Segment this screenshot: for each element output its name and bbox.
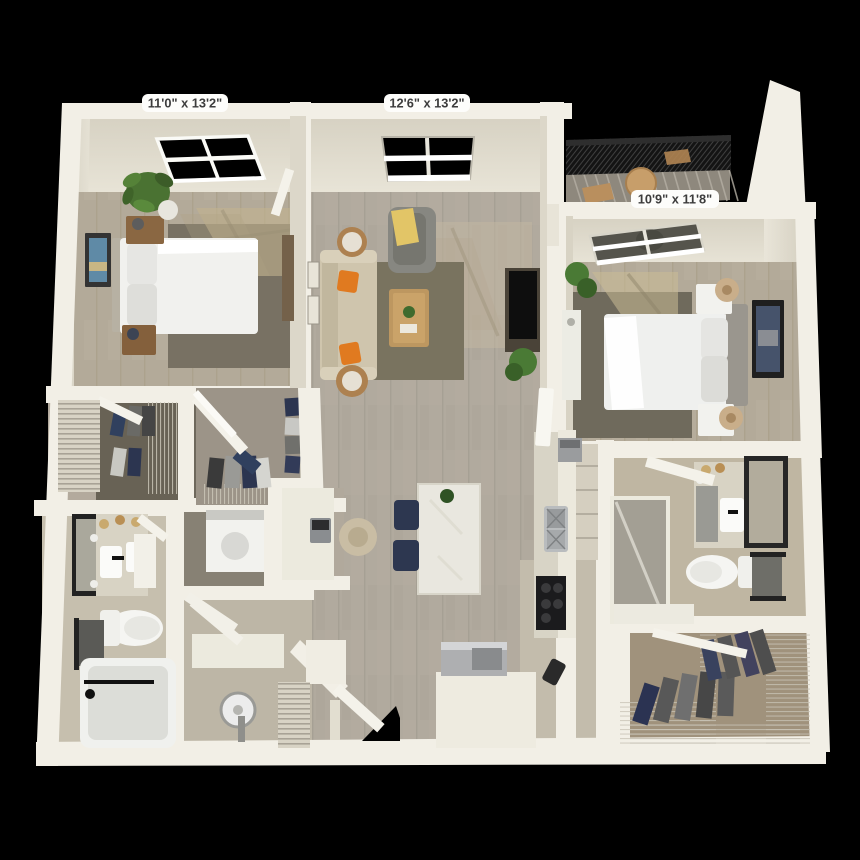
svg-text:11'0" x 13'2": 11'0" x 13'2" <box>148 96 222 111</box>
svg-text:10'9" x 11'8": 10'9" x 11'8" <box>638 192 712 207</box>
svg-text:12'6" x 13'2": 12'6" x 13'2" <box>389 96 464 111</box>
